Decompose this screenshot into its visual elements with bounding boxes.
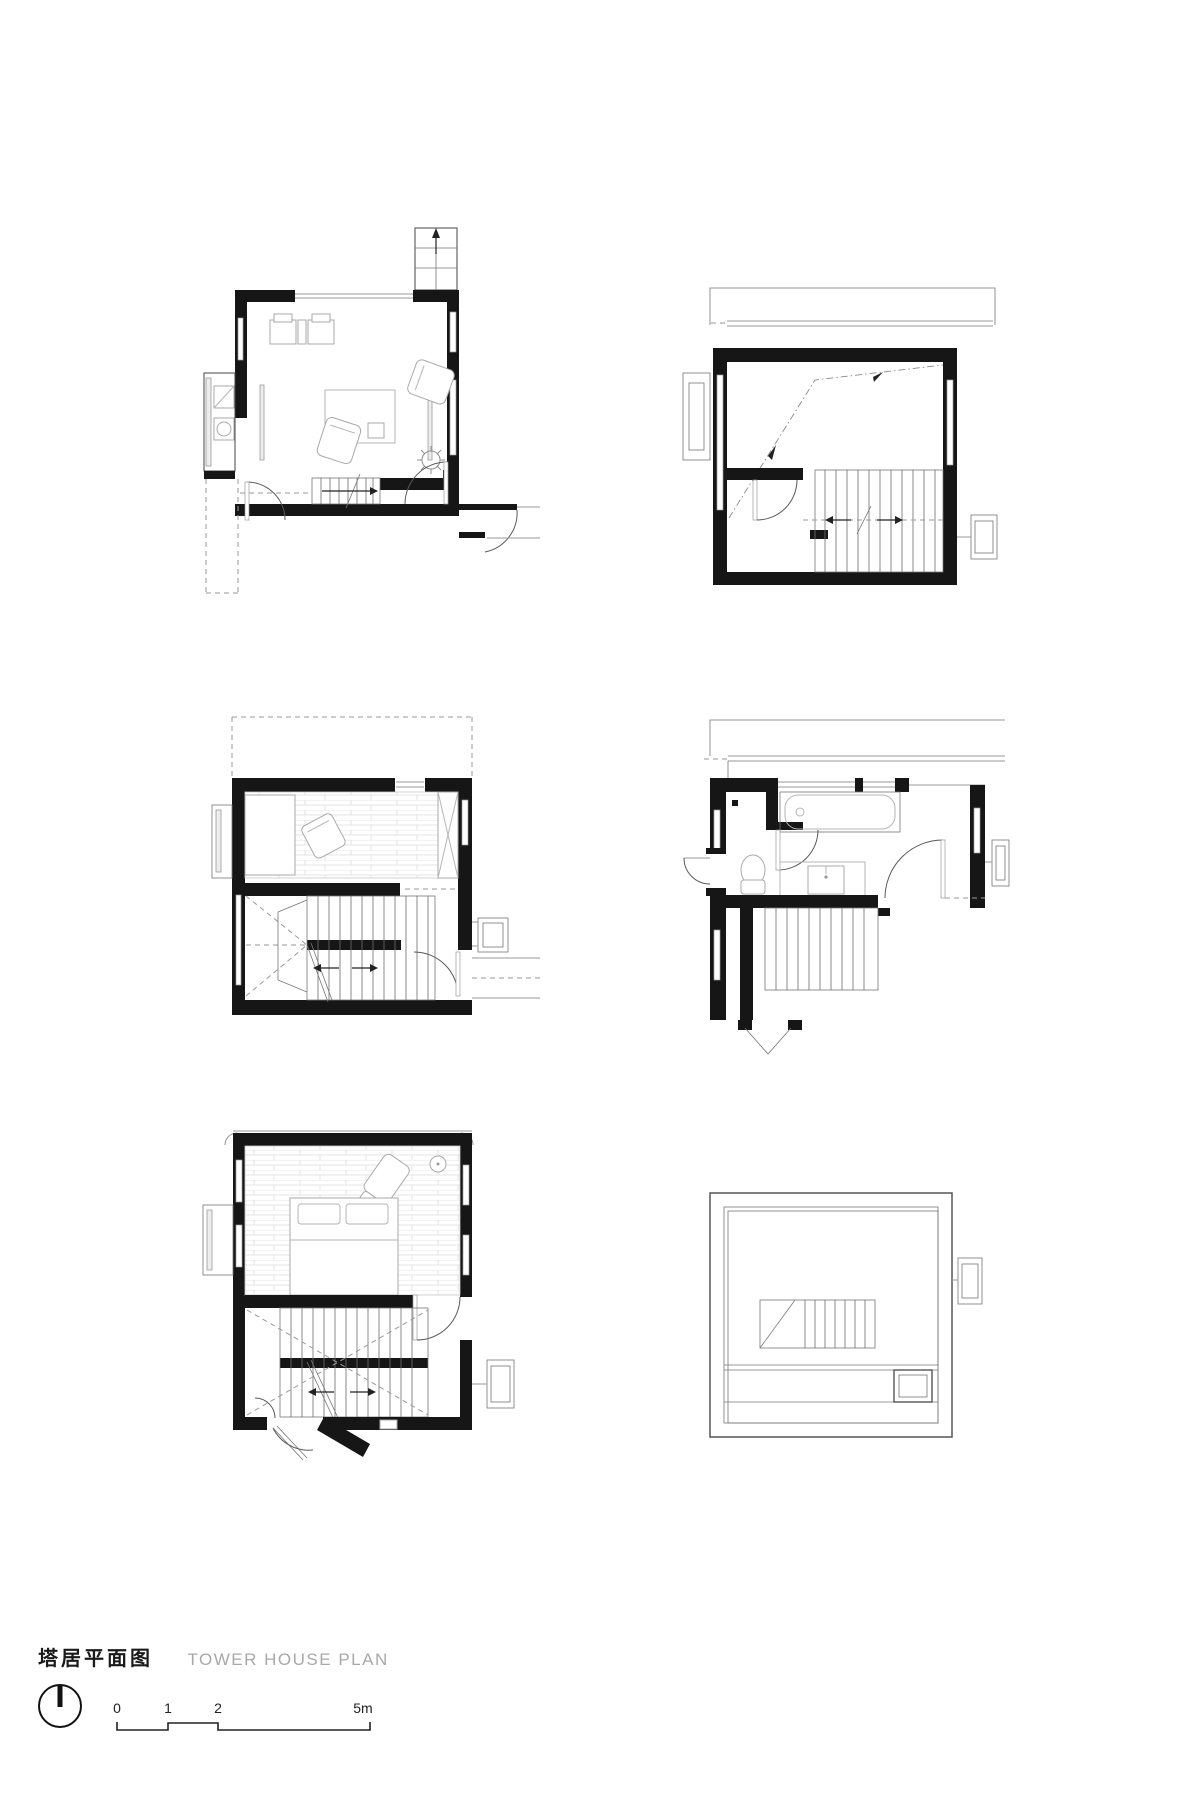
roof-eave-lines	[710, 288, 995, 326]
floor-plan-2-drawing	[675, 280, 1005, 600]
exterior-door-left	[684, 848, 726, 896]
scale-label-5m: 5m	[353, 1700, 372, 1716]
bedroom-floor	[245, 792, 458, 878]
toilet	[741, 855, 765, 894]
title-chinese: 塔居平面图	[38, 1648, 153, 1670]
bed	[290, 1198, 398, 1295]
window-box-right	[957, 515, 997, 559]
sheet: { "title": { "zh": "塔居平面图", "en": "TOWER…	[0, 0, 1200, 1800]
drawing-title: 塔居平面图 TOWER HOUSE PLAN	[38, 1642, 389, 1671]
interior-walls	[245, 1295, 428, 1368]
scale-label-0: 0	[113, 1700, 121, 1716]
scale-label-2: 2	[214, 1700, 222, 1716]
staircase	[312, 474, 380, 508]
staircase	[765, 908, 878, 990]
scale-label-1: 1	[164, 1700, 172, 1716]
stair-void	[760, 1300, 875, 1348]
exterior-path-lines	[472, 958, 540, 998]
bedroom-floor	[245, 1146, 460, 1295]
door-swing	[414, 952, 460, 996]
roof-eave-lines	[704, 720, 1005, 778]
floor-plan-4	[640, 690, 1010, 1080]
window-box-left	[683, 373, 710, 460]
dashed-outline-above	[232, 717, 472, 778]
window-box-right	[472, 918, 508, 952]
floor-plan-2	[675, 280, 1005, 600]
window-seat-bay	[212, 805, 232, 878]
window-seat-bay	[203, 1205, 233, 1275]
title-english: TOWER HOUSE PLAN	[187, 1650, 388, 1669]
bath-door-swing	[776, 830, 818, 870]
interior-walls	[245, 883, 455, 950]
staircase	[803, 470, 943, 572]
dashed-terrace-outline	[206, 479, 312, 595]
lower-entry	[738, 1020, 802, 1054]
north-arrow-icon	[36, 1682, 84, 1730]
exterior-walls	[713, 348, 957, 585]
floor-plan-5	[195, 1130, 540, 1480]
window-box-right	[952, 1258, 982, 1304]
entry-steps	[415, 228, 457, 290]
shaft	[438, 792, 458, 878]
entry-doors	[233, 1398, 472, 1460]
floor-plan-1	[200, 220, 540, 610]
interior-walls	[726, 895, 890, 1020]
floor-plan-3	[200, 700, 545, 1035]
floor-plan-6-drawing	[700, 1180, 990, 1450]
door-swing	[753, 480, 797, 520]
furniture	[260, 314, 456, 474]
floor-plan-5-drawing	[195, 1130, 540, 1480]
window-box-right	[472, 1360, 514, 1408]
window-box-right	[985, 840, 1009, 886]
kitchen-bay	[204, 373, 235, 479]
entry-corridor	[459, 504, 540, 552]
floor-plan-4-drawing	[640, 690, 1010, 1080]
floor-plan-6	[700, 1180, 990, 1450]
armchair	[316, 416, 363, 465]
door-swing	[413, 1295, 460, 1340]
scale-bar-line	[100, 1716, 390, 1738]
floor-plan-1-drawing	[200, 220, 540, 610]
floor-plan-3-drawing	[200, 700, 545, 1035]
interior-walls	[727, 468, 828, 539]
roof-gutter-band	[724, 1365, 938, 1402]
